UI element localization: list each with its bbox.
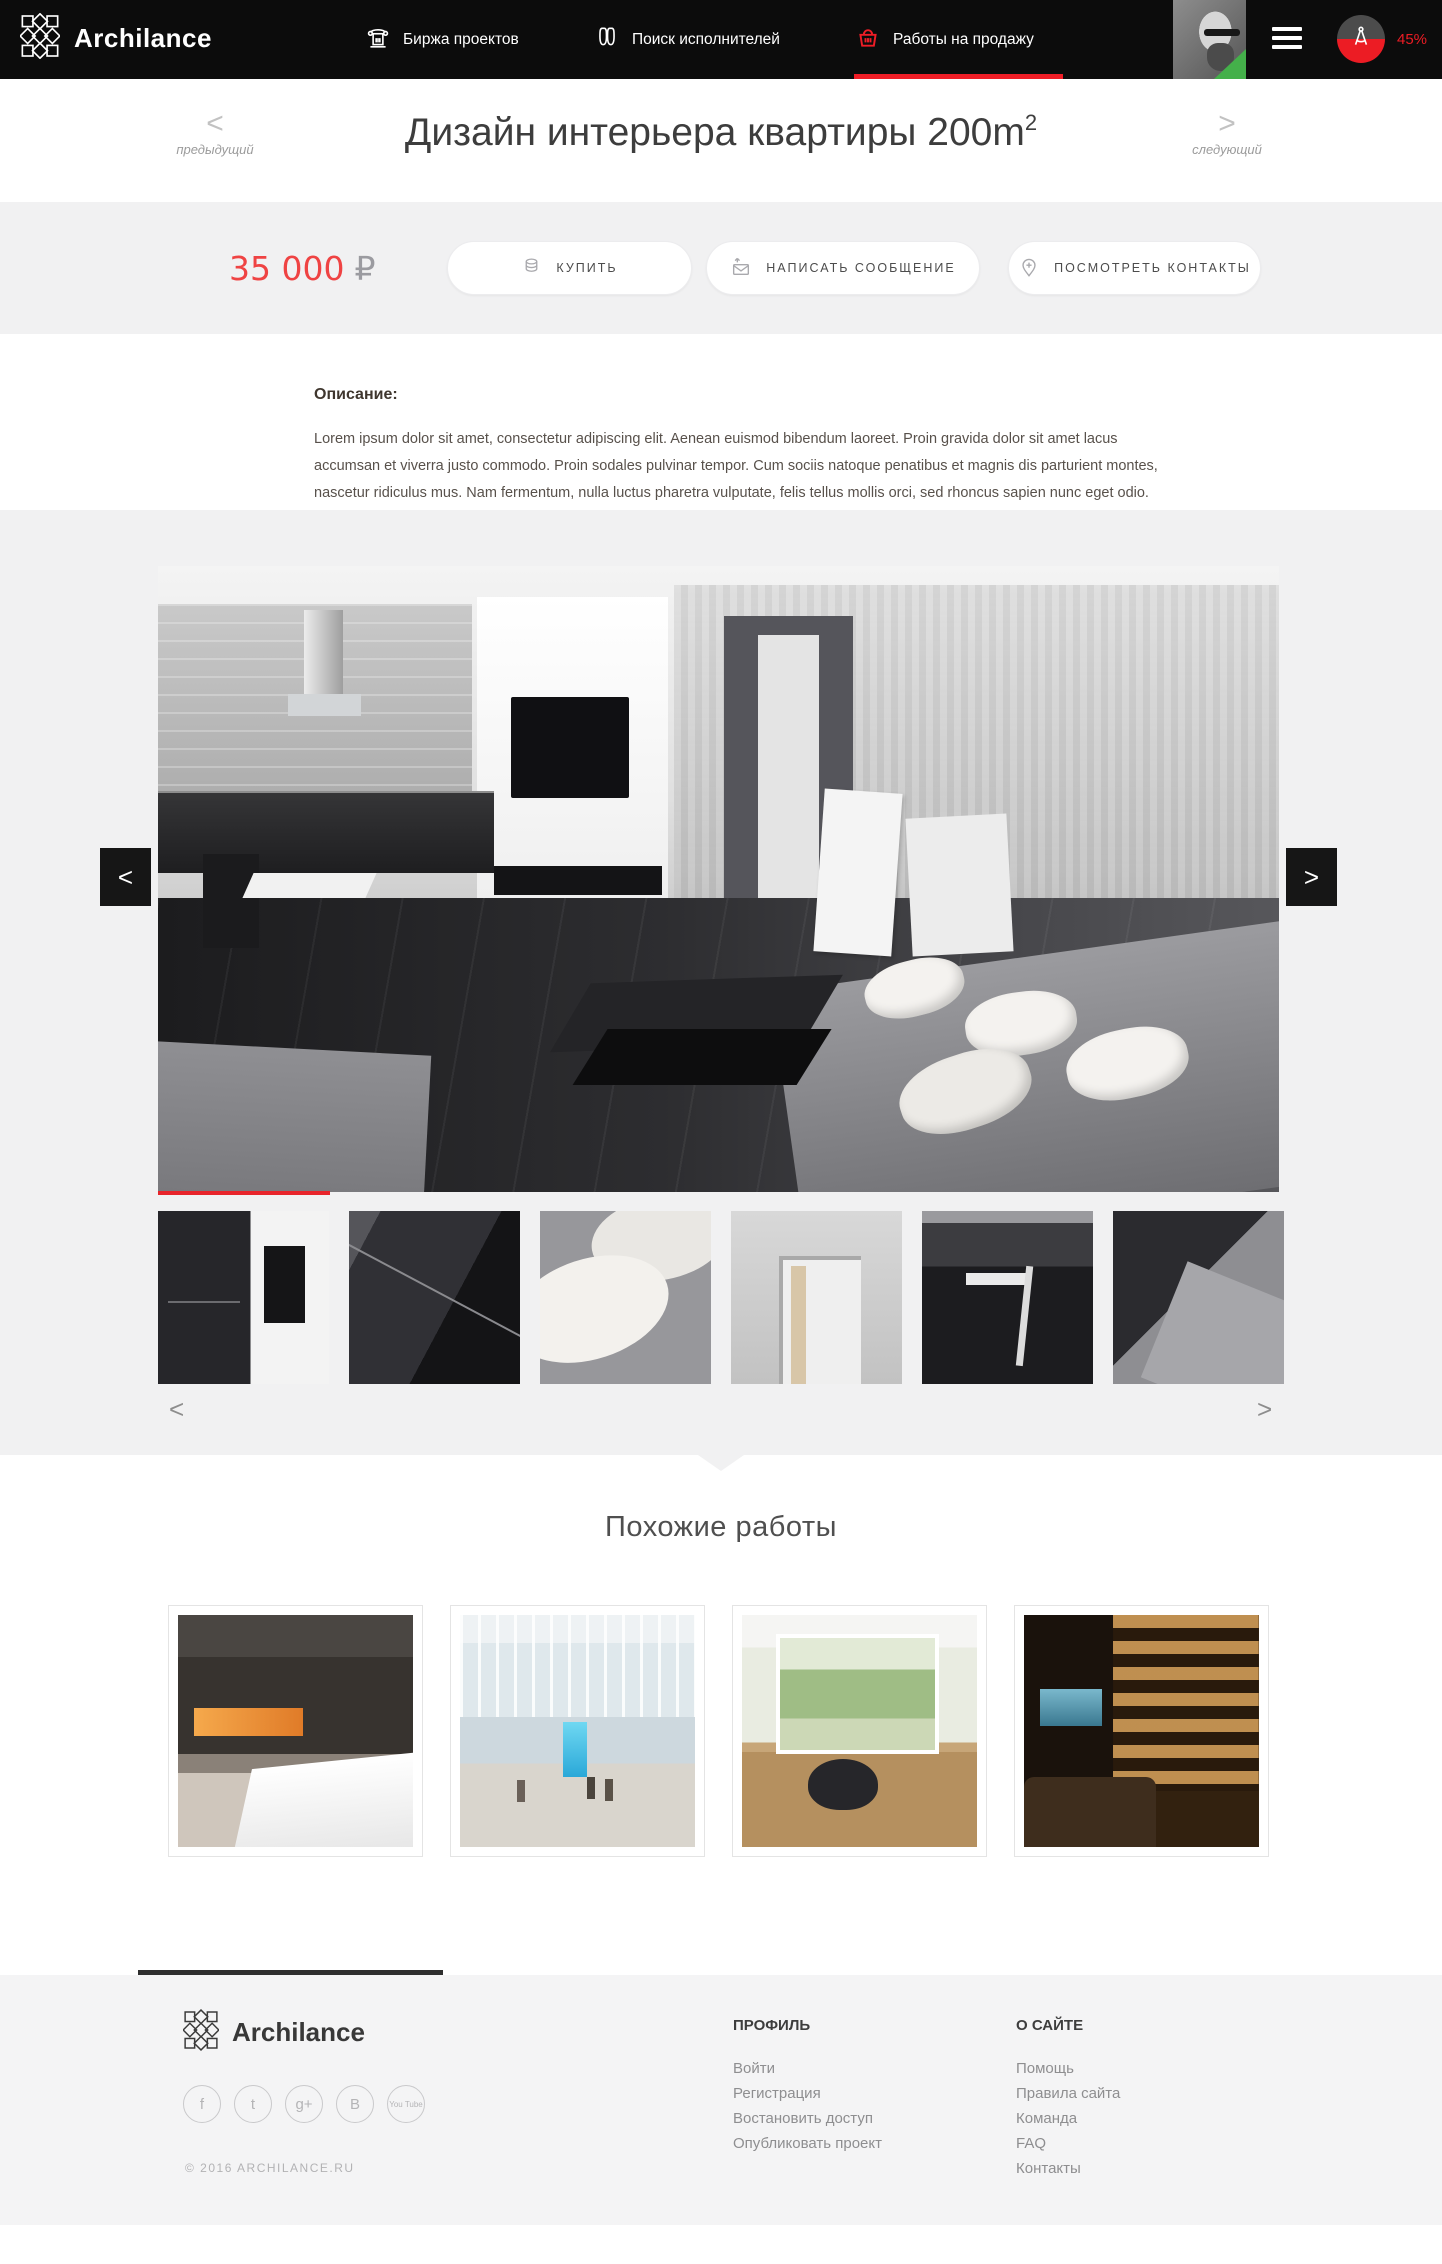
basket-icon [855,24,881,55]
footer-column-about: О САЙТЕ Помощь Правила сайта Команда FAQ… [1016,2017,1120,2181]
brand-logo[interactable]: Archilance [20,13,212,64]
bank-icon [365,24,391,55]
similar-works-section: Похожие работы [0,1455,1442,1975]
card-photo [742,1615,977,1847]
section-notch [698,1455,744,1471]
photo-chair [203,854,259,948]
main-photo-interior [158,566,1279,1192]
view-contacts-button[interactable]: ПОСМОТРЕТЬ КОНТАКТЫ [1008,241,1261,295]
thumbs-next-button[interactable]: > [1257,1394,1272,1425]
footer-brand-name: Archilance [232,2017,365,2048]
page-bottom-whitespace [0,2225,1442,2264]
avatar-art [1204,29,1241,36]
page-title: Дизайн интерьера квартиры 200m2 [141,79,1301,155]
footer: Archilance f t g+ B You Tube © 2016 ARCH… [0,1975,1442,2225]
chevron-right-icon: > [1304,862,1319,893]
footer-link-team[interactable]: Команда [1016,2106,1120,2131]
gallery-next-button[interactable]: > [1286,848,1337,906]
currency-ruble: ₽ [354,249,375,288]
menu-icon[interactable] [1272,27,1302,54]
twitter-icon[interactable]: t [234,2085,272,2123]
gallery-progress-indicator [158,1191,330,1195]
next-work-button[interactable]: > следующий [1167,109,1287,157]
card-photo [460,1615,695,1847]
card-photo [1024,1615,1259,1847]
photo-dining-table [242,873,376,898]
thumbnail-kitchen-detail[interactable] [158,1211,329,1384]
description-heading: Описание: [314,386,398,404]
thumbnail-sofa-floor-detail[interactable] [1113,1211,1284,1384]
pin-plus-icon [1018,256,1040,281]
user-avatar[interactable] [1173,0,1246,79]
thumbnail-strip [158,1211,1284,1384]
brand-name: Archilance [74,23,212,54]
chevron-right-icon: > [1167,109,1287,139]
nav-label: Работы на продажу [893,31,1034,49]
thumbnail-doorway-detail[interactable] [731,1211,902,1384]
photo-hood [304,610,343,704]
chevron-left-icon: < [155,109,275,139]
archilance-logo-icon [20,13,60,64]
photo-chaise [158,1041,431,1192]
nav-item-projects-exchange[interactable]: Биржа проектов [365,0,519,79]
footer-link-help[interactable]: Помощь [1016,2056,1120,2081]
photo-tv [511,697,629,797]
youtube-icon[interactable]: You Tube [387,2085,425,2123]
description-section: Описание: Lorem ipsum dolor sit amet, co… [0,334,1442,510]
description-text: Lorem ipsum dolor sit amet, consectetur … [314,426,1178,507]
photo-coffee-table [572,1029,831,1085]
avatar-art [1214,49,1246,79]
google-plus-icon[interactable]: g+ [285,2085,323,2123]
archilance-logo-icon [183,2009,219,2056]
send-message-icon [730,256,752,281]
footer-link-contacts[interactable]: Контакты [1016,2156,1120,2181]
thumbnail-coffee-table-detail[interactable] [349,1211,520,1384]
nav-label: Биржа проектов [403,31,519,49]
footer-brand-logo[interactable]: Archilance [183,2009,365,2056]
copyright: © 2016 ARCHILANCE.RU [185,2161,355,2175]
gallery-section: < > < > [0,510,1442,1455]
similar-card-mall-atrium[interactable] [450,1605,705,1857]
similar-card-bright-living-room[interactable] [732,1605,987,1857]
thumbnail-dining-area-detail[interactable] [922,1211,1093,1384]
purchase-bar: 35 000₽ КУПИТЬ НАПИСАТЬ СООБЩЕНИЕ [0,202,1442,334]
similar-card-home-library[interactable] [1014,1605,1269,1857]
coins-icon [521,256,542,280]
photo-leaning-panel [814,789,904,957]
footer-link-faq[interactable]: FAQ [1016,2131,1120,2156]
title-section: < предыдущий Дизайн интерьера квартиры 2… [0,79,1442,202]
nav-item-works-for-sale[interactable]: Работы на продажу [855,0,1034,79]
photo-leaning-panel [906,814,1014,957]
buy-button[interactable]: КУПИТЬ [447,241,692,295]
binoculars-icon [594,24,620,55]
photo-door [758,635,820,929]
similar-works-row [168,1605,1269,1857]
profile-progress-value: 45% [1397,31,1427,48]
photo-hood [288,694,361,716]
footer-accent-bar [138,1970,443,1975]
thumbs-prev-button[interactable]: < [169,1394,184,1425]
similar-card-fireplace-interior[interactable] [168,1605,423,1857]
footer-link-restore-access[interactable]: Востановить доступ [733,2106,882,2131]
social-links: f t g+ B You Tube [183,2085,425,2123]
footer-link-rules[interactable]: Правила сайта [1016,2081,1120,2106]
thumbnail-sofa-pillows-detail[interactable] [540,1211,711,1384]
footer-link-register[interactable]: Регистрация [733,2081,882,2106]
vk-icon[interactable]: B [336,2085,374,2123]
header: Archilance Биржа проектов Поиск исполнит… [0,0,1442,79]
footer-link-login[interactable]: Войти [733,2056,882,2081]
nav-label: Поиск исполнителей [632,31,780,49]
chevron-left-icon: < [118,862,133,893]
write-message-button[interactable]: НАПИСАТЬ СООБЩЕНИЕ [706,241,980,295]
price-value: 35 000 [229,249,344,288]
card-photo [178,1615,413,1847]
gallery-prev-button[interactable]: < [100,848,151,906]
footer-column-profile: ПРОФИЛЬ Войти Регистрация Востановить до… [733,2017,882,2156]
nav-item-find-performers[interactable]: Поиск исполнителей [594,0,780,79]
profile-progress-badge[interactable] [1337,15,1385,63]
photo-console [494,866,662,894]
footer-link-publish-project[interactable]: Опубликовать проект [733,2131,882,2156]
prev-work-button[interactable]: < предыдущий [155,109,275,157]
facebook-icon[interactable]: f [183,2085,221,2123]
price: 35 000₽ [229,249,375,288]
compass-icon [1348,24,1374,55]
